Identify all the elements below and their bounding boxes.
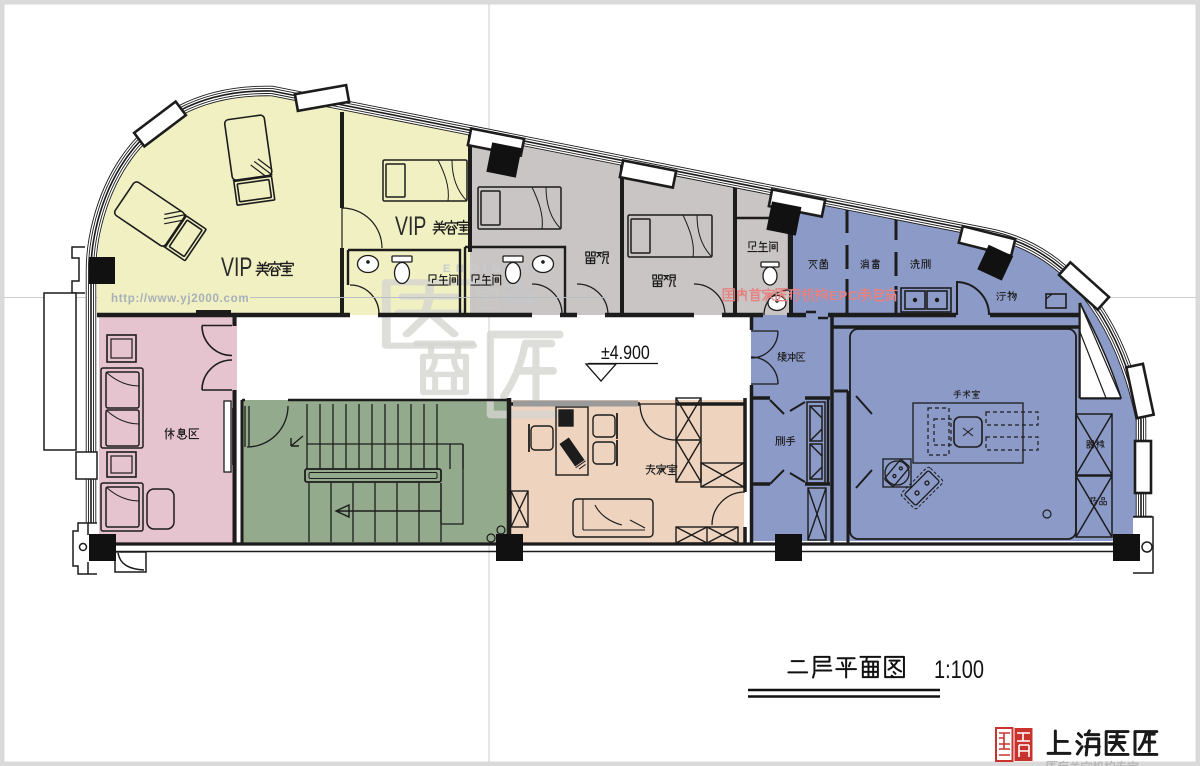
svg-text:VIP: VIP [395,211,426,241]
svg-text:EPC: EPC [829,288,858,303]
svg-text:VIP: VIP [221,252,252,282]
svg-text:ENGINEER: ENGINEER [443,263,544,275]
svg-text:1:100: 1:100 [934,656,984,684]
svg-text:http://www.yj2000.com: http://www.yj2000.com [111,293,249,305]
svg-text:±4.900: ±4.900 [601,342,650,364]
